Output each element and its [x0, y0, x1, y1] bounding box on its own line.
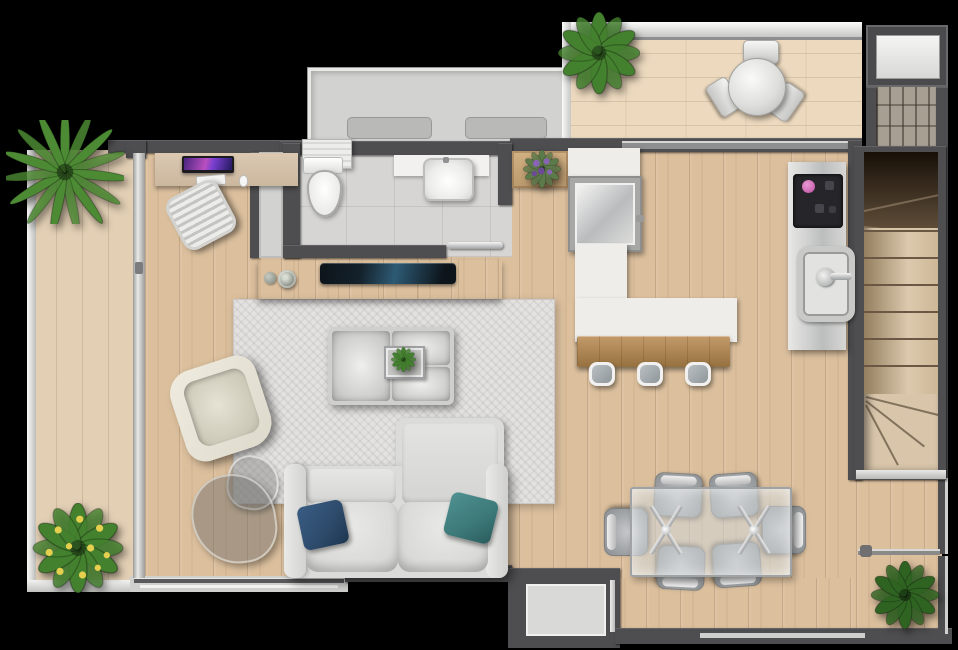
table-leg-x: [646, 499, 686, 561]
entry-left-wall: [866, 87, 876, 148]
sink-faucet: [443, 157, 449, 163]
ext-divider-glass: [610, 580, 615, 632]
table-leg-hub: [749, 525, 759, 535]
vase-large: [278, 270, 296, 288]
bathroom-bottom-wall: [283, 245, 446, 258]
bar-stool: [685, 362, 711, 386]
slider-track-light: [140, 585, 338, 588]
kitchen-sink-tap: [636, 215, 644, 222]
stair-bottom-sill: [856, 470, 946, 479]
floor-plan: [0, 0, 958, 650]
kitchen-sink-basin: [575, 183, 635, 245]
bottom-right-window-line: [700, 633, 865, 638]
corner-plant-bottom-right: [870, 561, 940, 629]
lower-railing-handle: [860, 545, 872, 557]
living-balcony-slider: [130, 576, 348, 592]
bistro-table: [728, 58, 786, 116]
stair-tread: [864, 284, 938, 313]
stair-tread: [864, 257, 938, 286]
stair-winder-line: [866, 396, 938, 417]
pillow-navy: [296, 499, 350, 552]
mouse: [239, 175, 248, 187]
tray-plant: [391, 347, 416, 372]
cooktop-knob-pink: [802, 180, 815, 193]
cooktop-burner: [825, 181, 834, 190]
ottoman-panel: [332, 331, 390, 401]
balcony-bush-plant: [558, 6, 640, 100]
monitor: [182, 156, 234, 173]
elevator-shaft-interior: [876, 35, 940, 79]
stairwell: [864, 152, 938, 472]
bar-stool: [637, 362, 663, 386]
kitchen-slider-track: [622, 141, 850, 149]
dining-table: [630, 487, 792, 577]
yellow-flower-bush: [28, 503, 128, 593]
bar-stool: [589, 362, 615, 386]
sofa-backrest-right: [402, 424, 498, 504]
slider-track-dark: [134, 578, 344, 583]
table-leg-hub: [661, 525, 671, 535]
tv: [320, 263, 456, 284]
sink-basin: [423, 158, 474, 201]
stair-top-shadow: [864, 152, 938, 228]
stair-tread: [864, 365, 938, 394]
vase-small: [264, 272, 276, 284]
cooktop-burner: [829, 206, 836, 213]
cooktop-burner: [815, 204, 824, 213]
bathroom-right-wall: [498, 143, 512, 205]
cooktop-panel: [793, 174, 843, 228]
entry-brick-floor: [876, 87, 944, 148]
balcony-door: [133, 153, 145, 578]
right-window-1: [938, 478, 948, 554]
purple-flower-plant: [522, 150, 562, 188]
stair-tread: [864, 338, 938, 367]
bathroom-slider-handle: [447, 242, 503, 249]
terrace-mat-1: [347, 117, 432, 139]
table-leg-x: [734, 499, 774, 561]
stair-tread: [864, 230, 938, 259]
kitchen-sink: [568, 176, 642, 252]
palm-plant: [6, 120, 124, 224]
bottom-shaft-window: [526, 584, 606, 636]
terrace-mat-2: [465, 117, 547, 139]
monitor-screen: [184, 158, 232, 170]
oven-handle-lever: [830, 273, 852, 280]
balcony-door-handle: [135, 262, 143, 274]
stair-tread: [864, 311, 938, 340]
armchair-seat: [181, 365, 263, 448]
sofa-backrest-left: [306, 469, 396, 504]
